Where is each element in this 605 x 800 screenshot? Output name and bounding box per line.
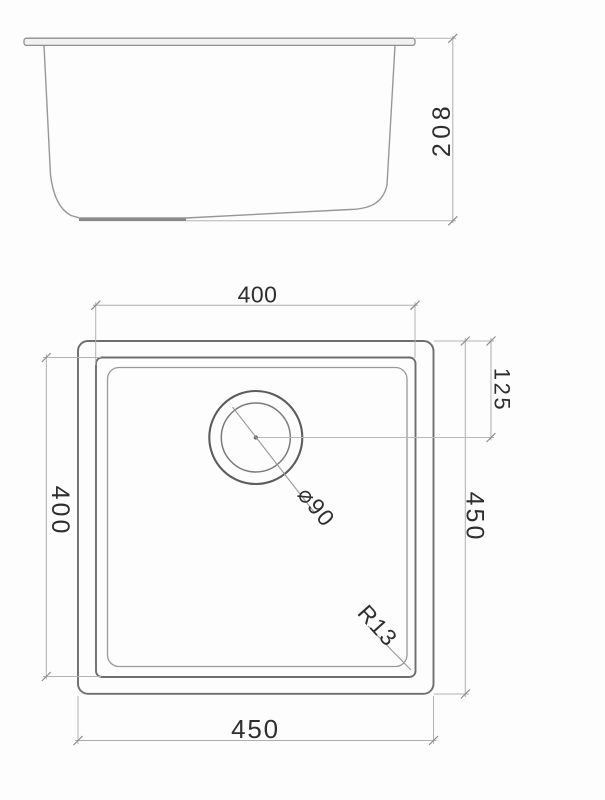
svg-text:125: 125: [490, 368, 515, 412]
svg-text:400: 400: [46, 486, 74, 537]
svg-text:R13: R13: [353, 600, 404, 652]
svg-text:450: 450: [461, 492, 489, 543]
svg-text:450: 450: [231, 714, 280, 744]
svg-text:208: 208: [428, 102, 456, 157]
svg-text:400: 400: [238, 282, 278, 308]
svg-text:⌀90: ⌀90: [293, 482, 341, 532]
